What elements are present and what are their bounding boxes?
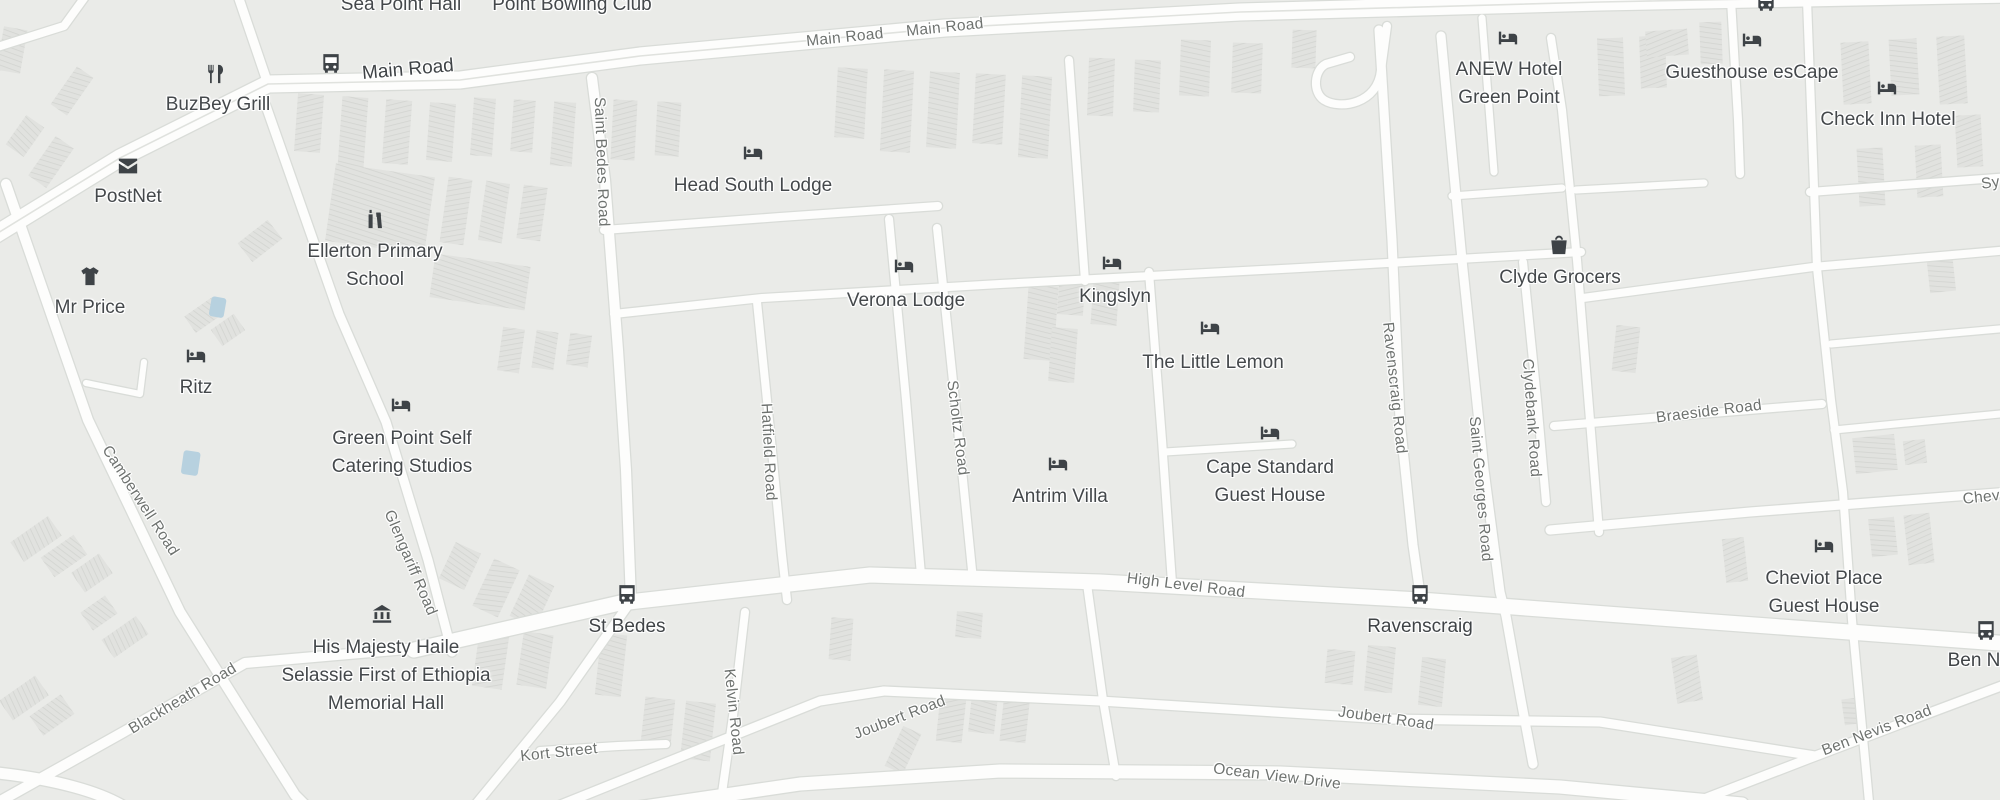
building-footprint [926,71,960,148]
building-footprint [1852,434,1898,474]
poi-label-line: Clyde Grocers [1499,264,1620,292]
poi-label-ellerton-primary-school[interactable]: Ellerton PrimarySchool [307,238,442,294]
lodging-icon[interactable] [893,255,915,277]
poi-label-line: Sea Point Hall [341,0,461,19]
poi-label-line: Antrim Villa [1012,483,1108,511]
lodging-icon[interactable] [742,142,764,164]
poi-label-line: PostNet [94,183,162,211]
building-footprint [1597,38,1625,97]
building-footprint [1179,39,1211,96]
poi-label-line: Check Inn Hotel [1820,106,1955,134]
poi-label-line: Verona Lodge [847,287,965,315]
building-footprint [1840,41,1871,104]
building-footprint [1645,29,1689,58]
poi-label-buzbey-grill[interactable]: BuzBey Grill [166,91,271,119]
transit-stop-label-st-bedes-stop[interactable]: St Bedes [588,614,665,640]
poi-label-line: Point Bowling Club [492,0,651,19]
lodging-icon[interactable] [185,345,207,367]
poi-label-cheviot-place-guest-house[interactable]: Cheviot PlaceGuest House [1765,565,1882,621]
bus-stop-icon[interactable] [1755,0,1778,13]
building-footprint [426,102,456,162]
poi-label-head-south-lodge[interactable]: Head South Lodge [674,172,832,200]
building-footprint [470,97,496,156]
poi-label-line: The Little Lemon [1142,349,1284,377]
lodging-icon[interactable] [1876,77,1898,99]
poi-label-line: ANEW Hotel [1456,56,1563,84]
poi-label-antrim-villa[interactable]: Antrim Villa [1012,483,1108,511]
building-footprint [1612,325,1641,373]
building-footprint [1325,649,1356,685]
poi-label-anew-hotel-green-point[interactable]: ANEW HotelGreen Point [1456,56,1563,112]
poi-label-check-inn-hotel[interactable]: Check Inn Hotel [1820,106,1955,134]
building-footprint [641,697,676,746]
building-footprint [1915,144,1944,197]
poi-label-line: Guest House [1206,482,1334,510]
poi-label-the-little-lemon[interactable]: The Little Lemon [1142,349,1284,377]
school-icon[interactable] [364,208,386,230]
poi-label-kingslyn[interactable]: Kingslyn [1079,283,1151,311]
poi-label-line: Ritz [180,374,213,402]
building-footprint [1868,517,1898,558]
poi-label-line: Memorial Hall [281,690,490,718]
lodging-icon[interactable] [1101,252,1123,274]
poi-label-line: Green Point [1456,84,1563,112]
building-footprint [834,67,868,138]
poi-label-guesthouse-escape[interactable]: Guesthouse esCape [1665,59,1838,87]
poi-label-line: Green Point Self [332,425,472,453]
building-footprint [829,617,854,660]
lodging-icon[interactable] [1047,453,1069,475]
building-footprint [1418,657,1446,707]
poi-label-line: Head South Lodge [674,172,832,200]
building-footprint [1018,75,1052,158]
grocery-icon[interactable] [1548,234,1570,256]
building-footprint [880,69,914,152]
building-footprint [1857,147,1886,206]
building-footprint [655,101,682,156]
building-footprint [1936,35,1968,104]
poi-label-ritz[interactable]: Ritz [180,374,213,402]
clothing-icon[interactable] [79,265,101,287]
building-footprint [550,101,576,166]
building-footprint [510,99,536,152]
building-footprint [972,73,1006,144]
poi-label-mr-price[interactable]: Mr Price [55,294,126,322]
lodging-icon[interactable] [1199,317,1221,339]
poi-label-line: Ellerton Primary [307,238,442,266]
building-footprint [1903,439,1927,465]
building-footprint [610,99,637,160]
lodging-icon[interactable] [1259,422,1281,444]
building-footprint [382,99,412,165]
poi-label-line: Cape Standard [1206,454,1334,482]
poi-label-sea-point-hall[interactable]: Sea Point Hall [341,0,461,19]
poi-label-line: Guest House [1765,593,1882,621]
water-feature [181,450,201,476]
building-footprint [338,96,369,168]
building-footprint [1048,327,1078,383]
poi-label-haile-selassie-memorial-hall[interactable]: His Majesty HaileSelassie First of Ethio… [281,634,490,718]
poi-label-line: Cheviot Place [1765,565,1882,593]
building-footprint [955,611,983,639]
lodging-icon[interactable] [1741,29,1763,51]
poi-label-clyde-grocers[interactable]: Clyde Grocers [1499,264,1620,292]
building-footprint [1364,645,1396,693]
poi-label-point-bowling-club[interactable]: Point Bowling Club [492,0,651,19]
building-footprint [1903,513,1934,565]
bus-stop-icon[interactable] [320,52,343,75]
poi-label-postnet[interactable]: PostNet [94,183,162,211]
building-footprint [566,333,592,368]
poi-label-cape-standard-guest-house[interactable]: Cape StandardGuest House [1206,454,1334,510]
poi-label-verona-lodge[interactable]: Verona Lodge [847,287,965,315]
building-footprint [1722,537,1748,583]
poi-label-line: His Majesty Haile [281,634,490,662]
poi-label-line: Mr Price [55,294,126,322]
restaurant-icon[interactable] [207,63,229,85]
lodging-icon[interactable] [390,394,412,416]
transit-stop-label-ravenscraig-stop[interactable]: Ravenscraig [1367,614,1473,640]
bus-stop-icon[interactable] [1975,619,1998,642]
mail-icon[interactable] [117,155,139,177]
building-footprint [1231,42,1263,93]
building-footprint [1087,58,1115,117]
building-footprint [294,93,324,153]
bus-stop-icon[interactable] [1409,583,1432,606]
museum-icon[interactable] [371,603,393,625]
building-footprint [1291,30,1316,69]
building-footprint [1955,114,1984,167]
transit-stop-label-ben-nevis-stop[interactable]: Ben N [1948,648,2000,674]
poi-label-line: BuzBey Grill [166,91,271,119]
lodging-icon[interactable] [1497,27,1519,49]
poi-label-line: Guesthouse esCape [1665,59,1838,87]
road-label-sydney-road-partial: Syd [1980,172,2000,194]
poi-label-line: Kingslyn [1079,283,1151,311]
bus-stop-icon[interactable] [616,583,639,606]
poi-label-green-point-self-catering-studios[interactable]: Green Point SelfCatering Studios [332,425,472,481]
lodging-icon[interactable] [1813,535,1835,557]
map-viewport[interactable]: Sea Point HallPoint Bowling ClubBuzBey G… [0,0,2000,800]
poi-label-line: School [307,266,442,294]
building-footprint [1133,60,1161,113]
building-footprint [1699,22,1722,65]
poi-label-line: Catering Studios [332,453,472,481]
poi-label-line: Selassie First of Ethiopia [281,662,490,690]
